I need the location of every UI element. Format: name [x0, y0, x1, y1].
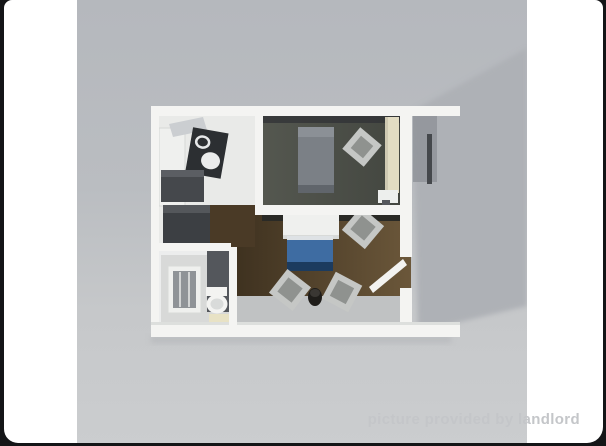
- sofa-front: [287, 262, 333, 271]
- entry-floor: [210, 205, 255, 247]
- right-wall-lower: [400, 288, 412, 322]
- top-wall: [151, 106, 460, 116]
- watermark-text: picture provided by landlord: [368, 411, 580, 428]
- recess-doorway: [427, 134, 432, 184]
- photo-card: picture provided by landlord: [4, 0, 603, 443]
- refrigerator-top: [161, 170, 204, 177]
- photo-viewer: picture provided by landlord: [0, 0, 606, 446]
- right-wall-mid: [400, 215, 412, 257]
- floorplan-photo[interactable]: [77, 0, 527, 443]
- concrete-floor: [237, 296, 412, 323]
- bathroom-right-wall: [229, 247, 237, 330]
- bedroom-closet-edge: [385, 117, 388, 193]
- toilet-seat: [211, 299, 224, 310]
- building-shadow: [414, 48, 527, 332]
- building-base-shadow: [151, 336, 451, 343]
- recess-shade: [413, 116, 437, 182]
- bedroom-living-wall: [255, 205, 412, 215]
- bed-pillow: [298, 127, 334, 137]
- sofa-top: [287, 240, 333, 264]
- stool-top: [310, 289, 320, 297]
- floorplan-render: [77, 0, 527, 443]
- sofa-bed: [287, 236, 333, 271]
- shower-basin: [173, 271, 196, 308]
- bottom-wall-shade: [151, 322, 460, 325]
- hall-wardrobe-top: [163, 205, 210, 213]
- left-wall: [151, 106, 159, 337]
- kitchen-bathroom-wall: [151, 243, 231, 251]
- entry-recess: [413, 116, 437, 184]
- bed-foot: [298, 185, 334, 193]
- right-wall-upper: [400, 106, 412, 207]
- kitchen-bedroom-wall: [255, 106, 263, 215]
